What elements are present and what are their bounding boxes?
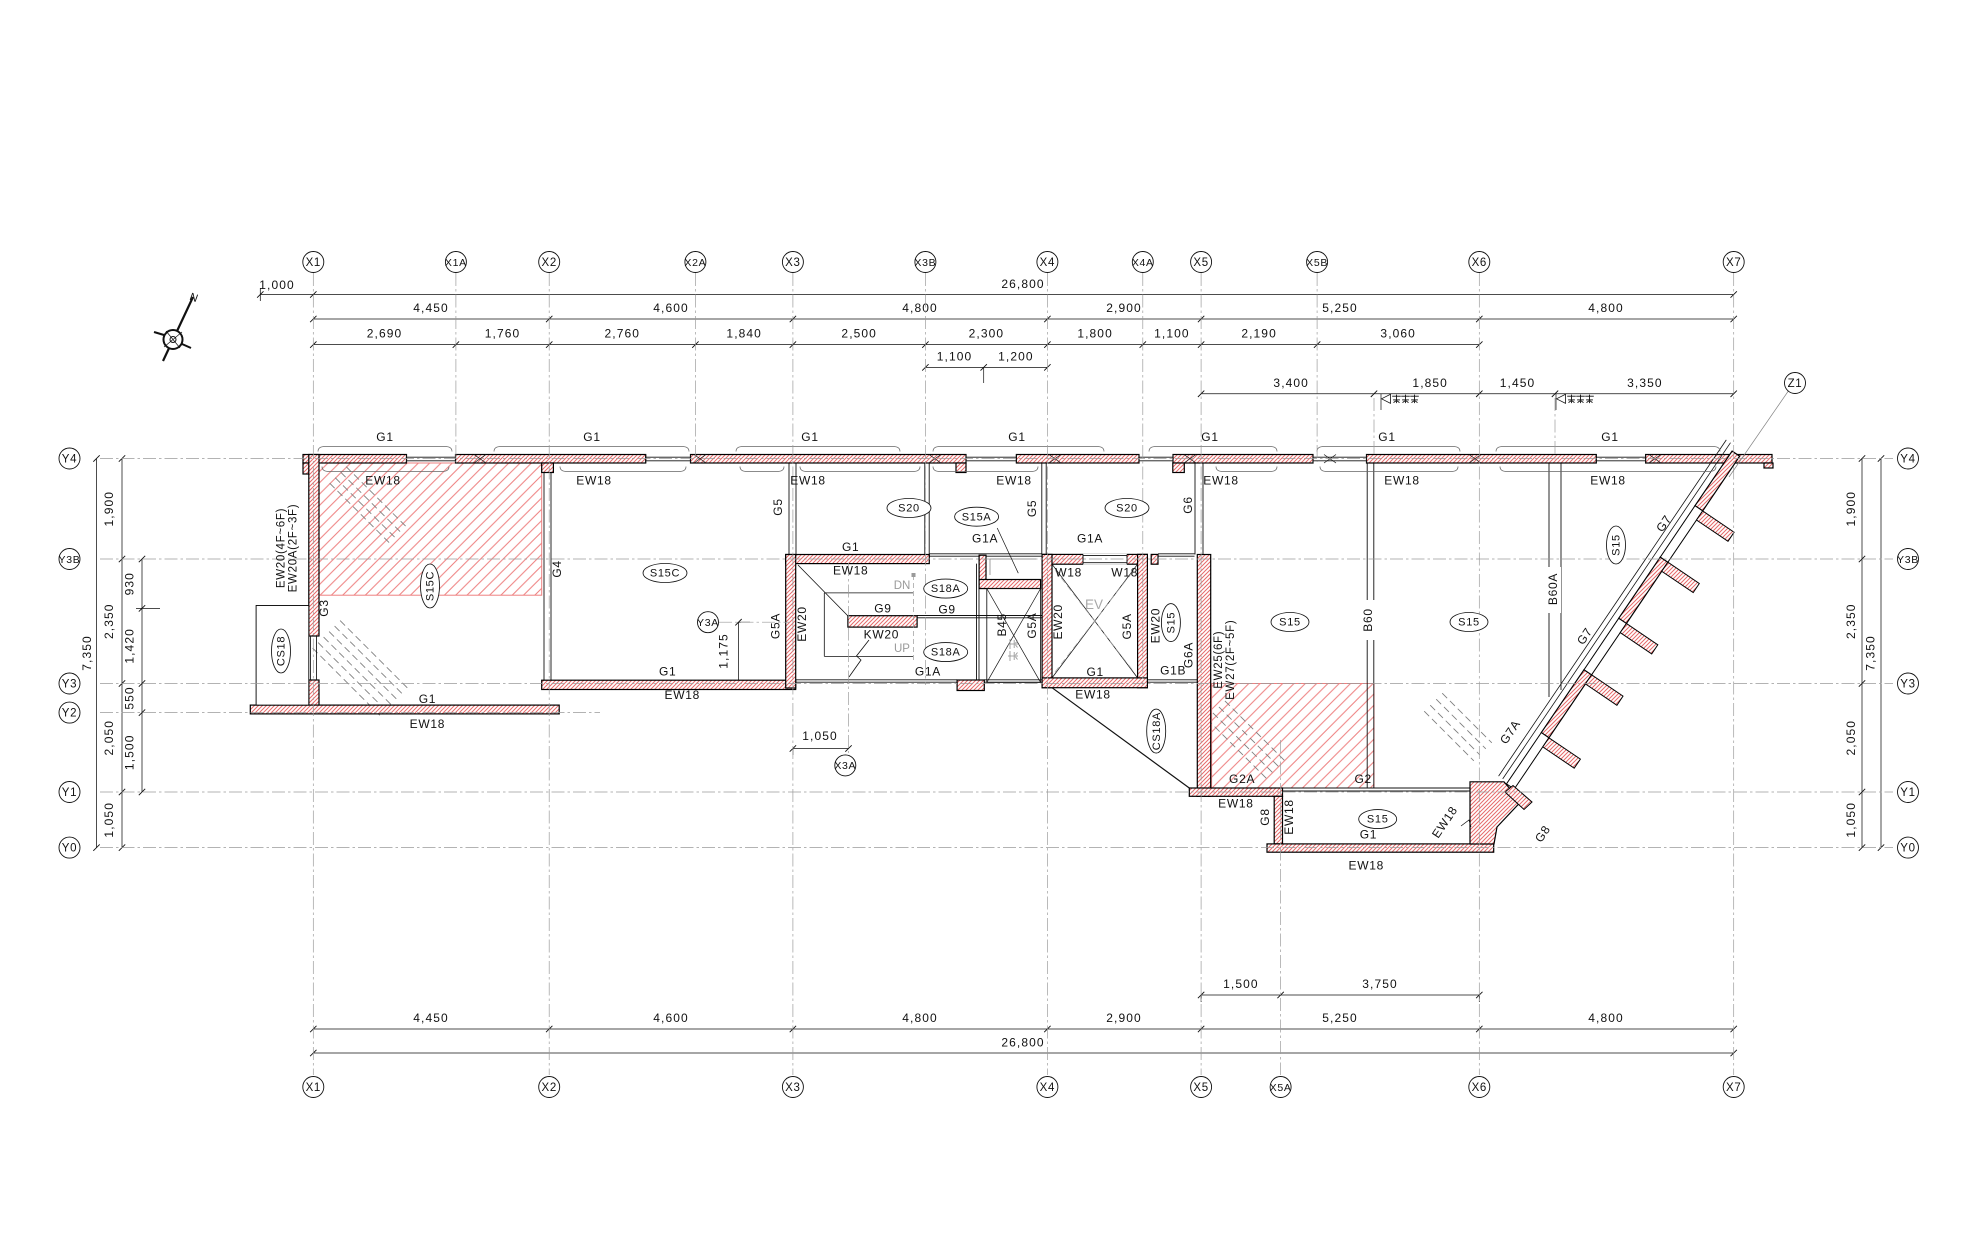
svg-text:EW18: EW18 [1075, 688, 1110, 702]
svg-text:X2: X2 [541, 1082, 556, 1094]
svg-text:3,350: 3,350 [1627, 376, 1663, 390]
svg-text:EW20(4F~6F): EW20(4F~6F) [276, 508, 288, 588]
svg-text:1,175: 1,175 [717, 633, 731, 669]
svg-text:X3B: X3B [914, 257, 936, 269]
svg-text:X7: X7 [1726, 1082, 1741, 1094]
svg-text:G5A: G5A [1120, 613, 1134, 639]
svg-text:X5A: X5A [1270, 1082, 1292, 1094]
svg-text:G1: G1 [1601, 430, 1618, 444]
svg-text:G1A: G1A [972, 532, 998, 546]
svg-text:G5A: G5A [1025, 613, 1039, 639]
svg-text:1,050: 1,050 [102, 802, 116, 838]
svg-text:S18A: S18A [931, 647, 961, 659]
svg-text:S20: S20 [1116, 503, 1138, 515]
svg-text:2,350: 2,350 [1844, 603, 1858, 639]
svg-text:EW18: EW18 [790, 474, 825, 488]
svg-text:2,190: 2,190 [1241, 327, 1277, 341]
svg-text:X5: X5 [1193, 257, 1208, 269]
svg-text:EW18: EW18 [576, 474, 611, 488]
svg-text:4,800: 4,800 [1588, 1011, 1624, 1025]
svg-text:2,760: 2,760 [605, 327, 641, 341]
svg-text:DN: DN [894, 580, 911, 592]
svg-text:5,250: 5,250 [1322, 301, 1358, 315]
svg-text:Y3B: Y3B [1897, 554, 1919, 566]
svg-text:X3A: X3A [834, 760, 856, 772]
svg-text:2,900: 2,900 [1106, 301, 1142, 315]
svg-text:S15C: S15C [650, 568, 680, 580]
svg-text:4,450: 4,450 [413, 301, 449, 315]
svg-text:X5B: X5B [1306, 257, 1328, 269]
svg-text:S15: S15 [1166, 612, 1178, 634]
svg-text:1,500: 1,500 [1223, 977, 1259, 991]
svg-text:3,060: 3,060 [1380, 327, 1416, 341]
svg-text:1,200: 1,200 [998, 349, 1034, 363]
svg-text:1,500: 1,500 [123, 735, 137, 771]
svg-text:G1: G1 [659, 664, 676, 678]
svg-text:7,350: 7,350 [1864, 635, 1878, 671]
svg-text:G1: G1 [583, 430, 600, 444]
svg-text:1,100: 1,100 [937, 349, 973, 363]
svg-text:EW18: EW18 [1349, 859, 1384, 873]
svg-text:1,100: 1,100 [1154, 327, 1190, 341]
svg-text:G1A: G1A [915, 664, 941, 678]
svg-text:G9: G9 [938, 602, 955, 616]
svg-text:EW18: EW18 [665, 688, 700, 702]
svg-text:1,450: 1,450 [1500, 376, 1536, 390]
svg-text:EV: EV [1085, 597, 1103, 612]
svg-text:2,050: 2,050 [1844, 720, 1858, 756]
svg-text:CS18A: CS18A [1151, 712, 1163, 750]
svg-text:S15A: S15A [962, 511, 992, 523]
svg-text:X2: X2 [541, 257, 556, 269]
svg-text:G2: G2 [1354, 772, 1371, 786]
svg-text:X7: X7 [1726, 257, 1741, 269]
svg-text:4,600: 4,600 [653, 301, 689, 315]
svg-text:X2A: X2A [684, 257, 706, 269]
svg-text:G9: G9 [874, 602, 891, 616]
svg-text:B45: B45 [995, 613, 1009, 636]
svg-text:Y4: Y4 [1900, 453, 1915, 465]
svg-text:G4: G4 [550, 560, 564, 577]
svg-text:G6A: G6A [1182, 642, 1196, 668]
svg-text:G5A: G5A [769, 613, 783, 639]
svg-text:2,900: 2,900 [1106, 1011, 1142, 1025]
svg-text:2,350: 2,350 [102, 603, 116, 639]
svg-text:G1: G1 [842, 540, 859, 554]
svg-text:S15: S15 [1611, 534, 1623, 556]
svg-text:G1: G1 [1378, 430, 1395, 444]
svg-text:2,300: 2,300 [969, 327, 1005, 341]
svg-text:X3: X3 [785, 1082, 800, 1094]
svg-text:G1: G1 [1360, 828, 1377, 842]
svg-text:Y0: Y0 [1900, 842, 1915, 854]
svg-text:S18A: S18A [931, 583, 961, 595]
svg-text:Y1: Y1 [1900, 787, 1915, 799]
svg-text:Y0: Y0 [62, 842, 77, 854]
svg-text:S15: S15 [1367, 814, 1389, 826]
svg-text:S15: S15 [1458, 617, 1480, 629]
svg-text:G1A: G1A [1077, 532, 1103, 546]
svg-text:1,760: 1,760 [485, 327, 521, 341]
svg-text:EW18: EW18 [1203, 474, 1238, 488]
svg-text:EW18: EW18 [996, 474, 1031, 488]
svg-text:X1: X1 [306, 1082, 321, 1094]
svg-text:EW25(6F): EW25(6F) [1213, 631, 1225, 689]
svg-text:2,500: 2,500 [841, 327, 877, 341]
svg-text:Y3B: Y3B [59, 554, 81, 566]
svg-text:EW20: EW20 [1148, 608, 1162, 643]
svg-text:X4: X4 [1040, 1082, 1055, 1094]
svg-text:G3: G3 [317, 599, 331, 616]
svg-text:X4A: X4A [1132, 257, 1154, 269]
svg-text:B60: B60 [1361, 608, 1375, 631]
svg-text:1,800: 1,800 [1077, 327, 1113, 341]
svg-text:B60A: B60A [1546, 573, 1560, 605]
svg-text:4,600: 4,600 [653, 1011, 689, 1025]
svg-text:G1: G1 [1008, 430, 1025, 444]
svg-text:2,690: 2,690 [367, 327, 403, 341]
svg-text:1,900: 1,900 [102, 491, 116, 527]
svg-text:G1: G1 [1201, 430, 1218, 444]
svg-text:Y3: Y3 [1900, 678, 1915, 690]
svg-text:26,800: 26,800 [1001, 1036, 1044, 1050]
svg-text:1,900: 1,900 [1844, 491, 1858, 527]
svg-text:Y3: Y3 [62, 678, 77, 690]
svg-text:G1: G1 [376, 430, 393, 444]
svg-text:4,450: 4,450 [413, 1011, 449, 1025]
svg-text:X6: X6 [1472, 257, 1487, 269]
svg-text:1,000: 1,000 [259, 278, 295, 292]
svg-text:3,750: 3,750 [1362, 977, 1398, 991]
svg-text:W18: W18 [1111, 566, 1138, 580]
svg-text:550: 550 [123, 686, 137, 709]
svg-text:7,350: 7,350 [80, 635, 94, 671]
svg-text:EW18: EW18 [1590, 474, 1625, 488]
svg-text:G6: G6 [1181, 496, 1195, 513]
svg-text:Z1: Z1 [1788, 378, 1803, 390]
svg-text:W18: W18 [1055, 566, 1082, 580]
svg-text:X1: X1 [306, 257, 321, 269]
svg-text:CS18: CS18 [276, 636, 288, 666]
svg-text:G2A: G2A [1229, 772, 1255, 786]
svg-text:EW20A(2F~3F): EW20A(2F~3F) [288, 504, 300, 593]
svg-text:1,050: 1,050 [802, 729, 838, 743]
svg-text:EW18: EW18 [1282, 799, 1296, 834]
svg-text:S15: S15 [1279, 617, 1301, 629]
svg-text:5,250: 5,250 [1322, 1011, 1358, 1025]
svg-text:Y4: Y4 [62, 453, 77, 465]
svg-text:EW18: EW18 [833, 564, 868, 578]
svg-text:X4: X4 [1040, 257, 1055, 269]
svg-text:Y3A: Y3A [697, 617, 719, 629]
svg-text:S20: S20 [898, 503, 920, 515]
svg-text:X6: X6 [1472, 1082, 1487, 1094]
svg-text:EW27(2F~5F): EW27(2F~5F) [1225, 620, 1237, 700]
svg-text:EW18: EW18 [1384, 474, 1419, 488]
svg-text:1,850: 1,850 [1412, 376, 1448, 390]
svg-text:G1: G1 [801, 430, 818, 444]
svg-text:G5: G5 [771, 498, 785, 515]
svg-text:EW20: EW20 [1051, 604, 1065, 639]
svg-text:930: 930 [123, 572, 137, 595]
svg-text:EW18: EW18 [410, 717, 445, 731]
svg-text:26,800: 26,800 [1001, 277, 1044, 291]
svg-text:G5: G5 [1025, 500, 1039, 517]
svg-text:X3: X3 [785, 257, 800, 269]
svg-text:X5: X5 [1193, 1082, 1208, 1094]
svg-text:4,800: 4,800 [902, 301, 938, 315]
svg-text:X1A: X1A [445, 257, 467, 269]
svg-text:4,800: 4,800 [1588, 301, 1624, 315]
svg-text:Y2: Y2 [62, 707, 77, 719]
svg-text:G1: G1 [419, 692, 436, 706]
svg-text:KW20: KW20 [864, 627, 899, 641]
svg-text:S15C: S15C [425, 571, 437, 601]
svg-text:1,050: 1,050 [1844, 802, 1858, 838]
svg-text:Y1: Y1 [62, 787, 77, 799]
svg-text:4,800: 4,800 [902, 1011, 938, 1025]
svg-text:EW20: EW20 [795, 606, 809, 641]
svg-text:EW18: EW18 [1218, 797, 1253, 811]
svg-text:EW18: EW18 [365, 474, 400, 488]
svg-text:G8: G8 [1258, 808, 1272, 825]
svg-text:3,400: 3,400 [1273, 376, 1309, 390]
svg-text:G1: G1 [1086, 665, 1103, 679]
svg-text:2,050: 2,050 [102, 720, 116, 756]
svg-text:1,840: 1,840 [726, 327, 762, 341]
svg-text:UP: UP [894, 643, 910, 655]
svg-text:1,420: 1,420 [123, 628, 137, 664]
